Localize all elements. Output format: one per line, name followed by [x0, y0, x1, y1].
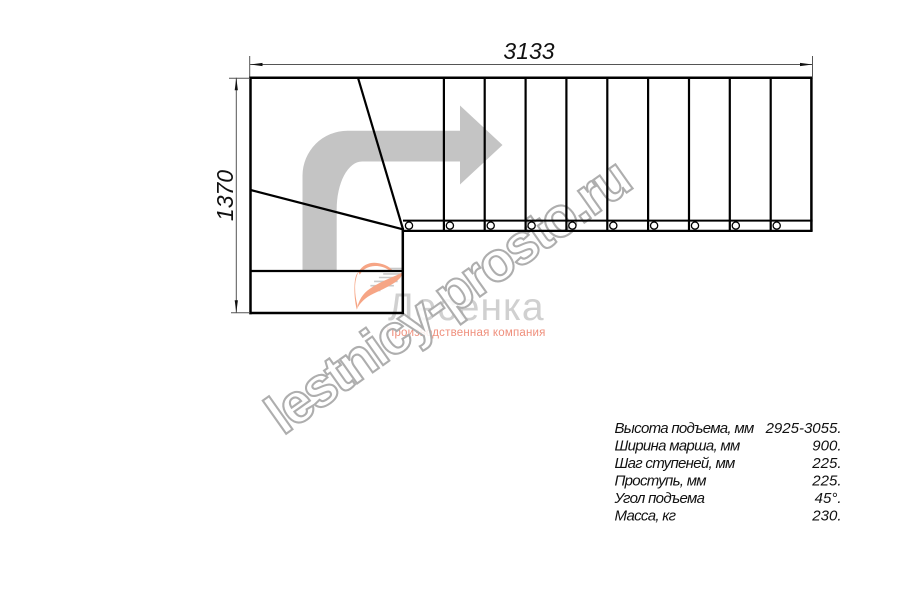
svg-text:225.: 225. — [811, 473, 841, 490]
svg-text:2925-3055.: 2925-3055. — [765, 420, 842, 437]
svg-text:Высота подъема, мм: Высота подъема, мм — [615, 420, 754, 437]
svg-text:3133: 3133 — [503, 38, 554, 64]
svg-text:225.: 225. — [811, 455, 841, 472]
svg-text:230.: 230. — [811, 508, 841, 525]
svg-text:Шаг ступеней, мм: Шаг ступеней, мм — [615, 455, 736, 472]
svg-text:Угол подъема: Угол подъема — [614, 490, 705, 507]
svg-text:Масса, кг: Масса, кг — [615, 508, 677, 525]
svg-text:45°.: 45°. — [815, 490, 842, 507]
svg-text:900.: 900. — [812, 438, 841, 455]
svg-text:Проступь, мм: Проступь, мм — [615, 473, 707, 490]
svg-text:1370: 1370 — [212, 170, 238, 221]
svg-text:Ширина марша, мм: Ширина марша, мм — [615, 438, 740, 455]
